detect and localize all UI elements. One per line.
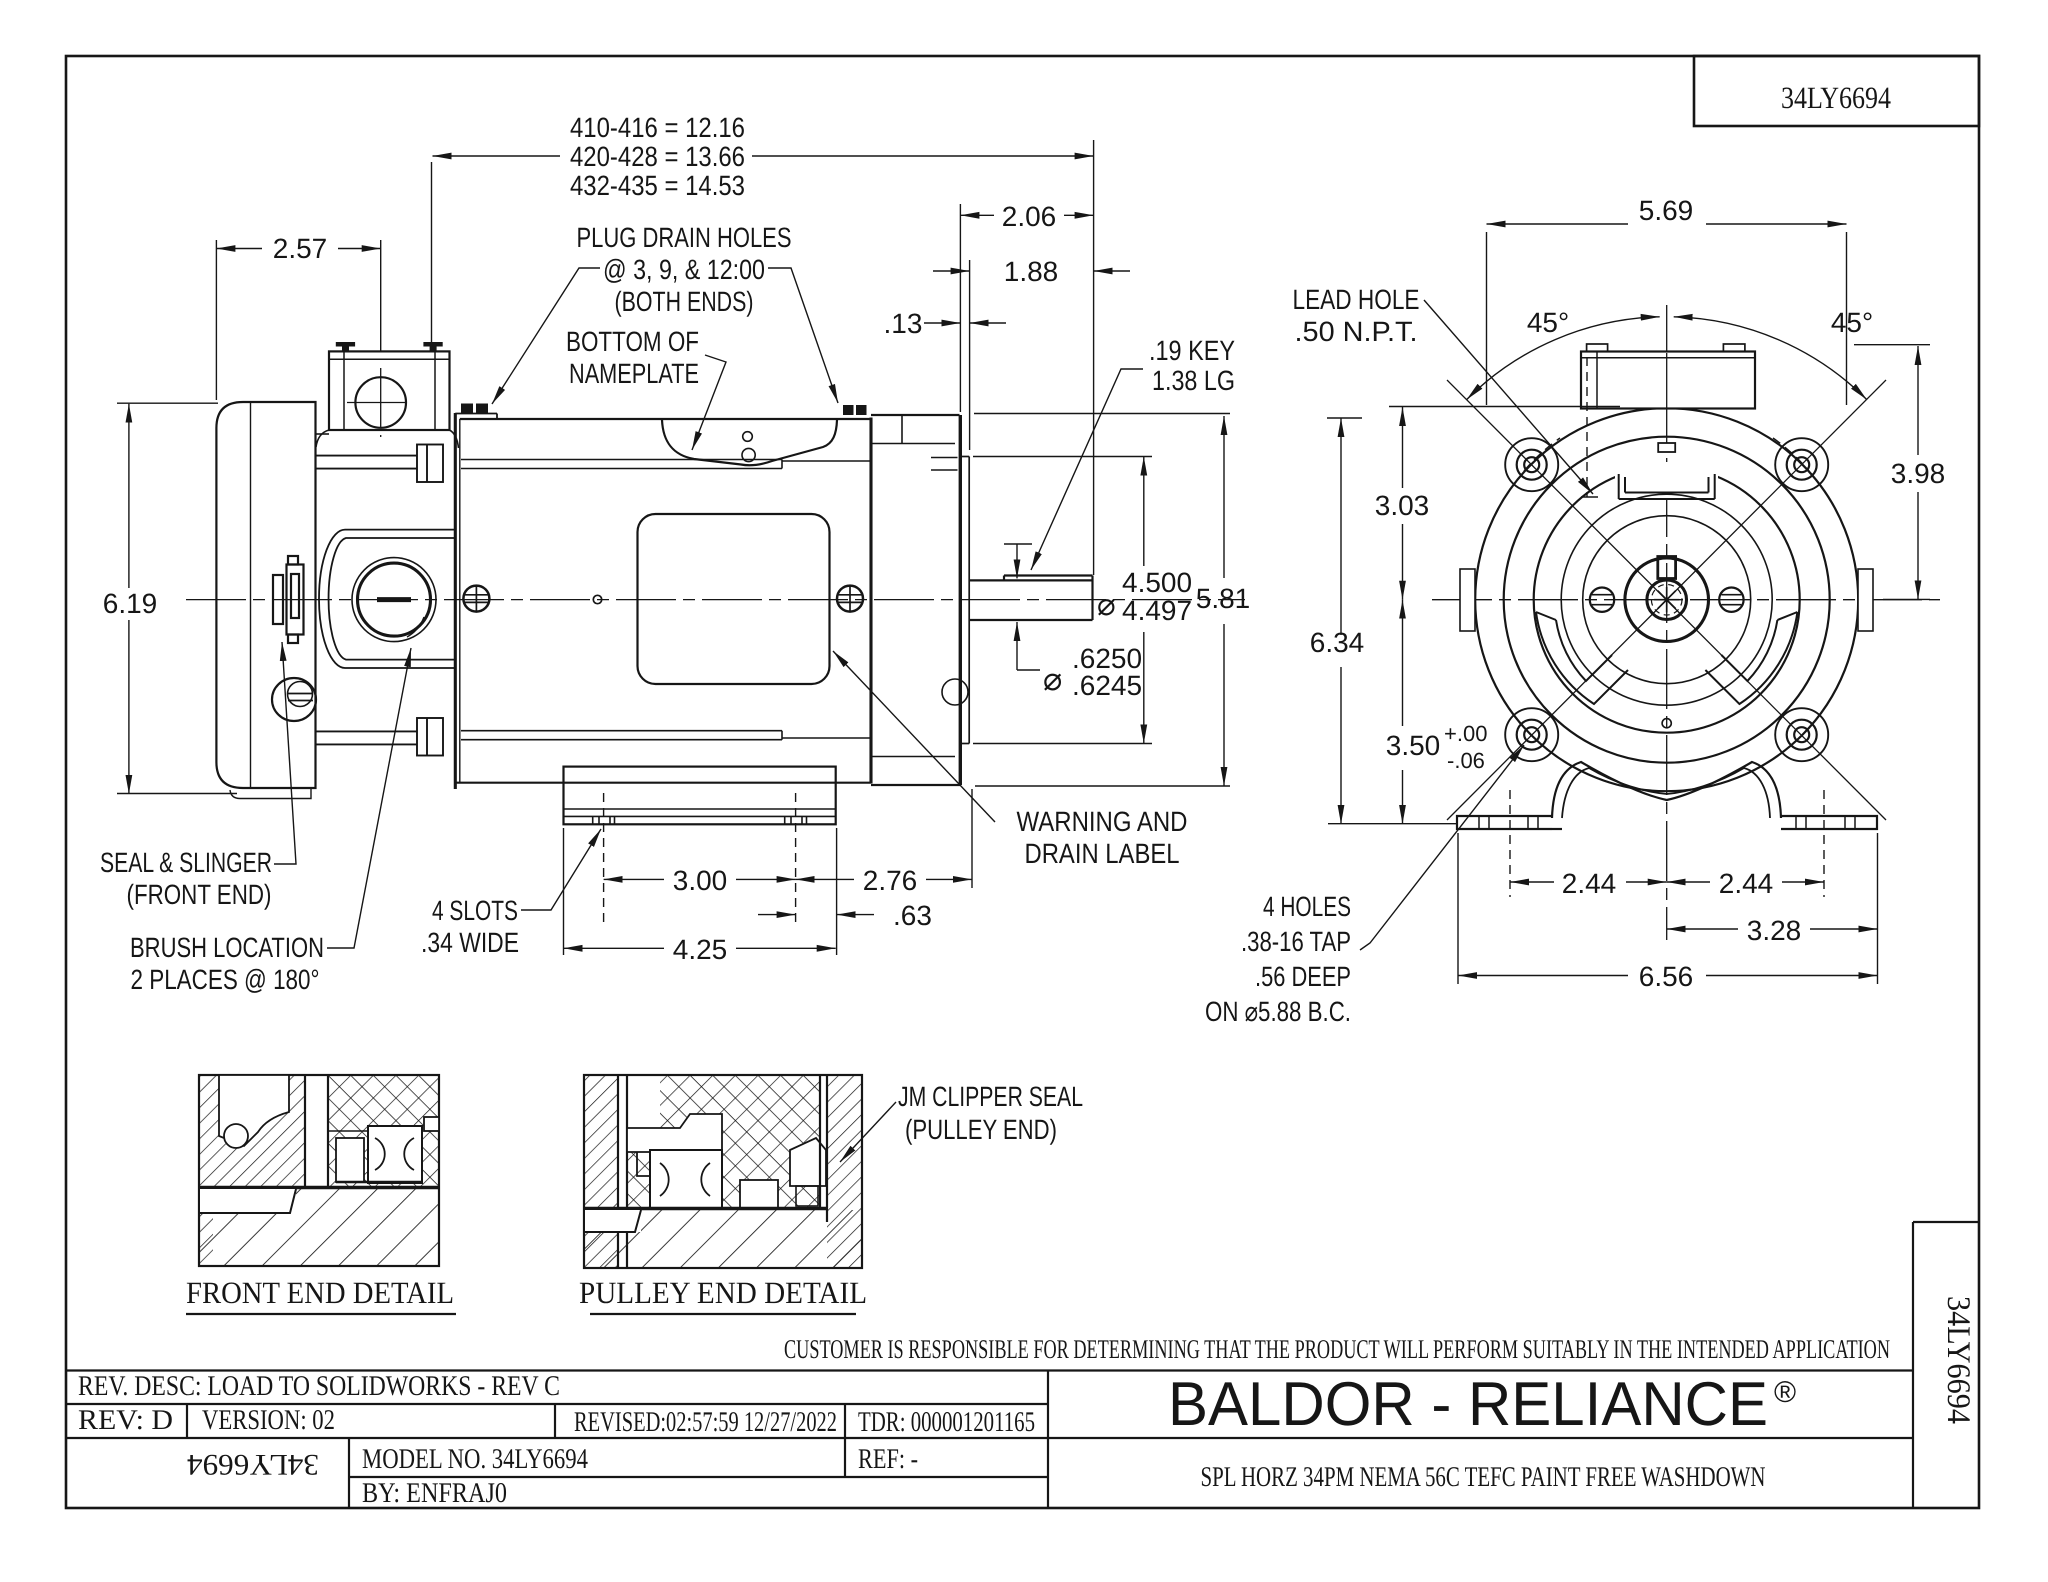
svg-text:5.81: 5.81 — [1196, 583, 1251, 614]
svg-text:.34 WIDE: .34 WIDE — [421, 927, 519, 958]
svg-text:REV. DESC: LOAD TO SOLIDWORKS: REV. DESC: LOAD TO SOLIDWORKS - REV C — [78, 1371, 560, 1402]
svg-text:ON ⌀5.88 B.C.: ON ⌀5.88 B.C. — [1205, 996, 1351, 1027]
svg-text:420-428 = 13.66: 420-428 = 13.66 — [570, 141, 745, 172]
svg-text:BRUSH LOCATION: BRUSH LOCATION — [130, 932, 324, 963]
svg-text:TDR: 000001201165: TDR: 000001201165 — [858, 1407, 1035, 1438]
svg-text:⌀: ⌀ — [1097, 587, 1116, 622]
svg-text:.63: .63 — [893, 900, 932, 931]
svg-text:BY: ENFRAJ0: BY: ENFRAJ0 — [362, 1478, 507, 1509]
svg-text:1.88: 1.88 — [1004, 256, 1059, 287]
svg-text:SPL HORZ 34PM NEMA 56C TEFC PA: SPL HORZ 34PM NEMA 56C TEFC PAINT FREE W… — [1201, 1462, 1766, 1493]
svg-text:3.28: 3.28 — [1747, 915, 1802, 946]
svg-text:REVISED:02:57:59 12/27/2022: REVISED:02:57:59 12/27/2022 — [574, 1407, 837, 1438]
svg-text:34LY6694: 34LY6694 — [1781, 80, 1891, 115]
svg-text:(PULLEY END): (PULLEY END) — [905, 1114, 1057, 1145]
svg-text:LEAD HOLE: LEAD HOLE — [1293, 284, 1420, 315]
svg-text:4 SLOTS: 4 SLOTS — [432, 895, 518, 926]
svg-text:6.34: 6.34 — [1310, 627, 1365, 658]
svg-text:2.76: 2.76 — [863, 865, 918, 896]
svg-text:6.56: 6.56 — [1639, 961, 1694, 992]
svg-text:FRONT END DETAIL: FRONT END DETAIL — [186, 1275, 454, 1310]
svg-text:.6245: .6245 — [1072, 670, 1142, 701]
svg-text:.38-16 TAP: .38-16 TAP — [1241, 926, 1351, 957]
svg-text:3.03: 3.03 — [1375, 490, 1430, 521]
svg-text:+.00: +.00 — [1444, 721, 1487, 746]
svg-text:4.25: 4.25 — [673, 934, 728, 965]
svg-text:SEAL & SLINGER: SEAL & SLINGER — [100, 847, 272, 878]
svg-text:3.98: 3.98 — [1891, 458, 1946, 489]
svg-text:(FRONT END): (FRONT END) — [127, 879, 272, 910]
svg-text:3.00: 3.00 — [673, 865, 728, 896]
svg-text:1.38 LG: 1.38 LG — [1152, 365, 1235, 396]
svg-text:BALDOR - RELIANCE: BALDOR - RELIANCE — [1168, 1370, 1768, 1439]
svg-text:-.06: -.06 — [1447, 748, 1485, 773]
svg-text:(BOTH ENDS): (BOTH ENDS) — [615, 286, 754, 317]
svg-text:®: ® — [1774, 1376, 1796, 1409]
svg-text:DRAIN LABEL: DRAIN LABEL — [1025, 838, 1180, 869]
svg-text:BOTTOM OF: BOTTOM OF — [566, 326, 699, 357]
svg-text:.56 DEEP: .56 DEEP — [1255, 961, 1351, 992]
svg-text:3.50: 3.50 — [1386, 730, 1441, 761]
svg-text:PLUG DRAIN HOLES: PLUG DRAIN HOLES — [577, 222, 792, 253]
svg-text:REF: -: REF: - — [858, 1444, 918, 1475]
svg-text:CUSTOMER IS RESPONSIBLE FOR DE: CUSTOMER IS RESPONSIBLE FOR DETERMINING … — [784, 1334, 1890, 1364]
svg-text:2 PLACES @ 180°: 2 PLACES @ 180° — [131, 964, 320, 995]
svg-text:2.44: 2.44 — [1562, 868, 1617, 899]
svg-text:45°: 45° — [1831, 307, 1873, 338]
svg-text:NAMEPLATE: NAMEPLATE — [569, 358, 699, 389]
svg-text:2.57: 2.57 — [273, 233, 328, 264]
svg-text:MODEL NO. 34LY6694: MODEL NO. 34LY6694 — [362, 1444, 588, 1475]
svg-text:34LY6694: 34LY6694 — [187, 1448, 319, 1481]
svg-text:.19 KEY: .19 KEY — [1149, 335, 1235, 366]
svg-text:JM CLIPPER SEAL: JM CLIPPER SEAL — [898, 1081, 1083, 1112]
svg-text:432-435 = 14.53: 432-435 = 14.53 — [570, 170, 745, 201]
svg-text:34LY6694: 34LY6694 — [1940, 1296, 1976, 1424]
svg-text:⌀: ⌀ — [1043, 661, 1062, 697]
svg-text:WARNING AND: WARNING AND — [1017, 806, 1188, 837]
svg-text:2.44: 2.44 — [1719, 868, 1774, 899]
svg-text:REV: D: REV: D — [78, 1405, 173, 1436]
svg-text:.50 N.P.T.: .50 N.P.T. — [1295, 316, 1418, 347]
svg-text:4.500: 4.500 — [1122, 567, 1192, 598]
svg-text:5.69: 5.69 — [1639, 195, 1694, 226]
svg-text:2.06: 2.06 — [1002, 201, 1057, 232]
svg-text:@ 3, 9, & 12:00: @ 3, 9, & 12:00 — [603, 254, 765, 285]
svg-text:4.497: 4.497 — [1122, 595, 1192, 626]
svg-text:45°: 45° — [1527, 307, 1569, 338]
svg-text:PULLEY END DETAIL: PULLEY END DETAIL — [579, 1275, 867, 1310]
svg-text:VERSION: 02: VERSION: 02 — [202, 1405, 335, 1436]
svg-text:6.19: 6.19 — [103, 588, 158, 619]
svg-text:410-416 = 12.16: 410-416 = 12.16 — [570, 112, 745, 143]
svg-text:.13: .13 — [884, 308, 923, 339]
svg-text:4 HOLES: 4 HOLES — [1263, 891, 1351, 922]
